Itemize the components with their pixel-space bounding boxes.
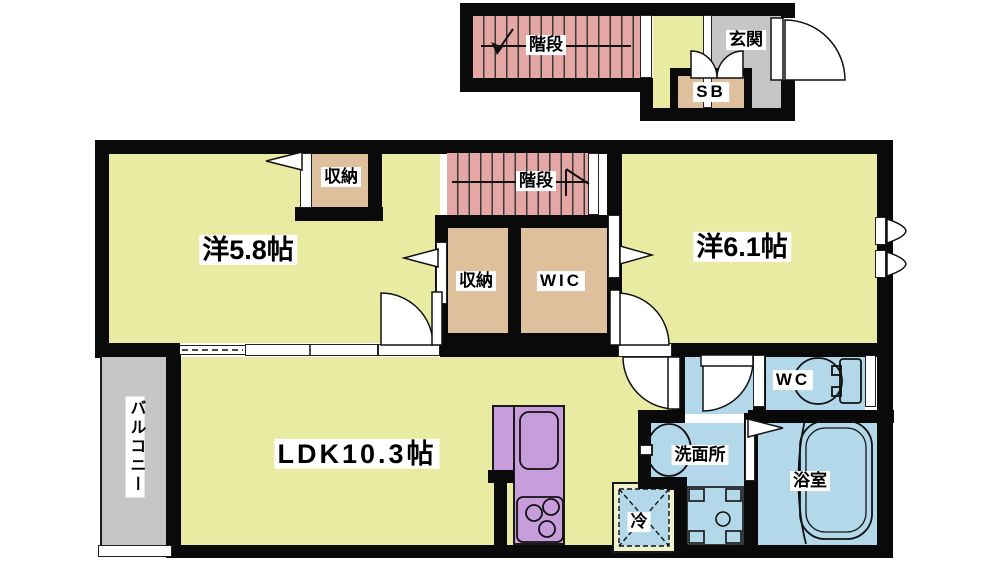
label-upper-stairs: 階段 [526, 35, 566, 55]
label-main-stairs: 階段 [516, 171, 556, 191]
wall-segment [638, 477, 687, 490]
doorway-band [618, 343, 672, 357]
wall-segment [435, 333, 621, 346]
wall-segment [166, 350, 181, 557]
wall-segment [460, 78, 653, 92]
label-toilet: WC [773, 370, 813, 390]
wall-segment [748, 410, 894, 423]
label-ldk: LDK10.3帖 [274, 439, 439, 469]
window-band [180, 345, 245, 355]
label-entrance: 玄関 [726, 30, 766, 50]
washroom-corridor-area [685, 357, 753, 414]
closet-sliding-door [300, 153, 312, 208]
label-washroom: 洗面所 [672, 445, 729, 465]
wall-segment [672, 343, 877, 357]
balcony-edge [98, 545, 172, 557]
wall-segment [95, 140, 893, 154]
label-balcony: バルコニー [126, 397, 145, 498]
bath-door-opening [745, 419, 755, 481]
label-bathroom: 浴室 [790, 471, 830, 491]
closet-door-opening [436, 242, 447, 304]
label-refrigerator: 冷 [628, 512, 651, 532]
wall-segment [368, 150, 382, 221]
stairs-hall-divider [640, 15, 652, 78]
wall-segment [508, 228, 521, 345]
toilet-window [865, 355, 876, 407]
label-bedroom-west-closet: 収納 [321, 167, 361, 187]
toilet-door [753, 355, 765, 407]
label-shoe-box: SB [693, 82, 729, 102]
wall-segment [95, 140, 109, 358]
label-bedroom-east: 洋6.1帖 [693, 232, 791, 262]
wall-segment [166, 545, 893, 558]
stairs-edge-band [588, 153, 599, 215]
sliding-window [245, 344, 378, 356]
doorway-band [378, 344, 440, 356]
label-bedroom-west: 洋5.8帖 [199, 235, 297, 265]
label-closet: 収納 [456, 271, 496, 291]
wall-segment [460, 3, 795, 16]
window-band [875, 250, 886, 278]
wall-segment [672, 357, 685, 414]
wall-segment [638, 410, 685, 423]
wic-door-opening [608, 215, 620, 278]
window-band [875, 217, 886, 245]
entrance-door-opening [782, 18, 795, 80]
wall-segment [877, 140, 893, 558]
wall-segment [435, 215, 621, 228]
kitchen-counter-area [513, 405, 565, 545]
kitchen-partition-wall [494, 482, 507, 546]
label-walk-in-closet: WIC [537, 271, 585, 291]
kitchen-counter-side [492, 405, 515, 476]
floor-plan: 階段 玄関 SB 洋5.8帖 収納 階段 収納 WIC 洋6.1帖 LDK10.… [0, 0, 1000, 562]
